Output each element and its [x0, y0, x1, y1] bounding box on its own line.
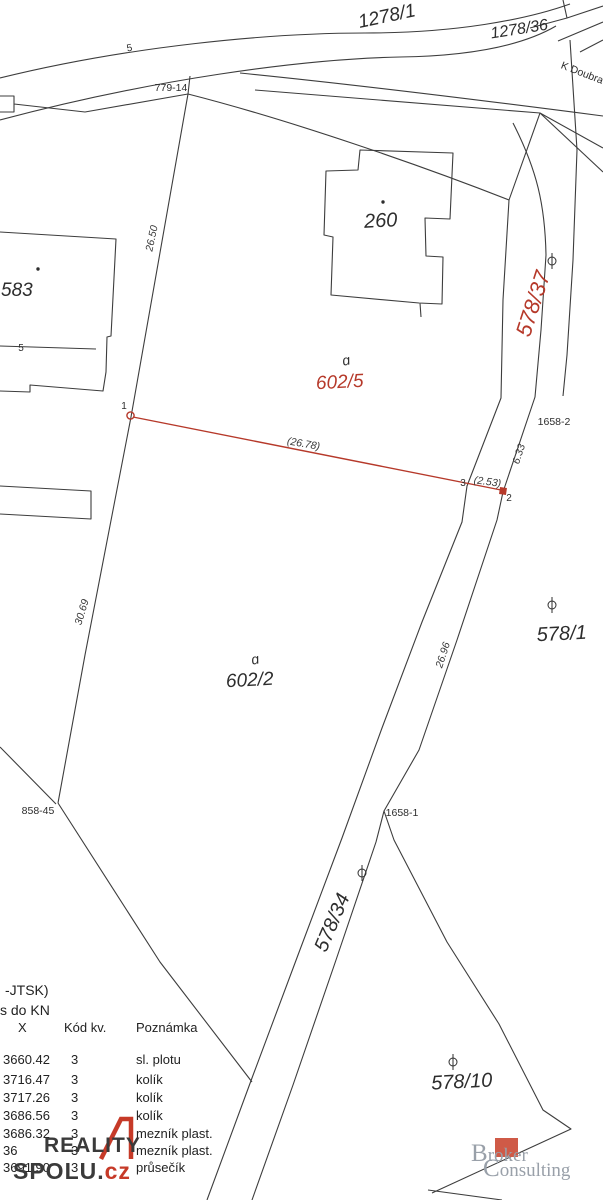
- courtyard-symbol-icon: ɑ: [340, 351, 351, 368]
- ref-label-1658-2: 1658-2: [538, 416, 571, 428]
- spolu-tld: cz: [105, 1158, 131, 1184]
- red-measure-line: [133, 417, 501, 490]
- parcel-label-260: 260: [362, 209, 397, 233]
- road-outer-east-line: [563, 40, 577, 396]
- orchard-icon: [548, 597, 556, 613]
- point-label-3: 3: [460, 478, 466, 489]
- parcel-602-south-boundary: [0, 747, 252, 1082]
- table-col-x: X: [18, 1020, 27, 1035]
- poznamka: kolík: [136, 1072, 163, 1087]
- parcel-label-583: 583: [1, 280, 33, 301]
- orchard-icon: [548, 253, 556, 269]
- kod-kv: 3: [71, 1052, 78, 1067]
- coord-x: 3660.42: [3, 1052, 50, 1067]
- spolu-word: SPOLU.: [13, 1158, 105, 1184]
- street-name-label: K Doubra: [559, 60, 603, 87]
- table-col-kod: Kód kv.: [64, 1020, 106, 1035]
- orchard-icon: [358, 865, 366, 881]
- measure-2-53: (2.53): [473, 474, 502, 490]
- table-row: 3716.47 3 kolík: [0, 1072, 300, 1089]
- parcel-label-578-37: 578/37: [511, 267, 556, 339]
- parcel-label-578-1: 578/1: [536, 622, 587, 647]
- measure-26-50: 26.50: [143, 224, 160, 253]
- red-measure-group: [127, 412, 507, 495]
- parcel-label-602-2: 602/2: [225, 669, 274, 692]
- measure-6-33: 6.33: [510, 442, 528, 465]
- spolu-logo-text: SPOLU.cz: [13, 1158, 131, 1185]
- kod-kv: 3: [71, 1090, 78, 1105]
- kod-kv: 3: [71, 1072, 78, 1087]
- street-south-curve: [0, 26, 556, 120]
- orchard-icon: [449, 1054, 457, 1070]
- road-east-edge: [252, 123, 546, 1200]
- table-col-poznamka: Poznámka: [136, 1020, 197, 1035]
- k-street-south-edge: [255, 90, 603, 148]
- parcel-label-1278-36: 1278/36: [489, 17, 549, 43]
- parcel-label-602-5: 602/5: [315, 371, 364, 394]
- fence-symbol-icon: 5: [126, 43, 134, 55]
- reality-spolu-logo: REALITY SPOLU.cz: [0, 1108, 250, 1200]
- fence-symbol-icon: 5: [18, 343, 24, 354]
- parcel-602-west-boundary: [58, 94, 188, 803]
- coord-x: 3717.26: [3, 1090, 50, 1105]
- parcel-label-578-10: 578/10: [431, 1069, 493, 1094]
- ref-label-779-14: 779-14: [155, 82, 188, 94]
- building-260-outline: [324, 150, 453, 317]
- parcel-label-578-34: 578/34: [310, 890, 354, 955]
- building-260-dot: [381, 200, 384, 203]
- broker-consulting-logo: Broker Consulting: [455, 1130, 603, 1196]
- building-583-dot: [36, 267, 39, 270]
- courtyard-symbol-icon: ɑ: [249, 650, 260, 667]
- poznamka: sl. plotu: [136, 1052, 181, 1067]
- measure-30-69: 30.69: [73, 598, 92, 627]
- table-row: 3717.26 3 kolík: [0, 1090, 300, 1107]
- parcel-label-1278-1: 1278/1: [356, 0, 417, 33]
- street-north-curve: [0, 4, 570, 78]
- reality-logo-text: REALITY: [44, 1134, 141, 1158]
- orchard-symbols-group: [358, 253, 556, 1070]
- ref-label-1658-1: 1658-1: [386, 807, 419, 819]
- coord-x: 3716.47: [3, 1072, 50, 1087]
- measure-26-96: 26.96: [433, 641, 453, 671]
- point-label-1: 1: [121, 401, 127, 412]
- table-row: 3660.42 3 sl. plotu: [0, 1052, 300, 1069]
- cadastral-map-page: 1278/1 1278/36 583 260 602/5 578/37 602/…: [0, 0, 603, 1200]
- table-header-kn: s do KN: [0, 1002, 50, 1018]
- poznamka: kolík: [136, 1090, 163, 1105]
- point-label-2: 2: [506, 493, 512, 504]
- building-583-outline: [0, 232, 116, 519]
- broker-logo-line2: Consulting: [483, 1159, 570, 1181]
- table-header-jtsk: -JTSK): [5, 982, 49, 998]
- k-street-north-edge: [240, 73, 603, 116]
- parcel-602-5-north-boundary: [188, 94, 509, 200]
- ref-label-858-45: 858-45: [22, 805, 55, 817]
